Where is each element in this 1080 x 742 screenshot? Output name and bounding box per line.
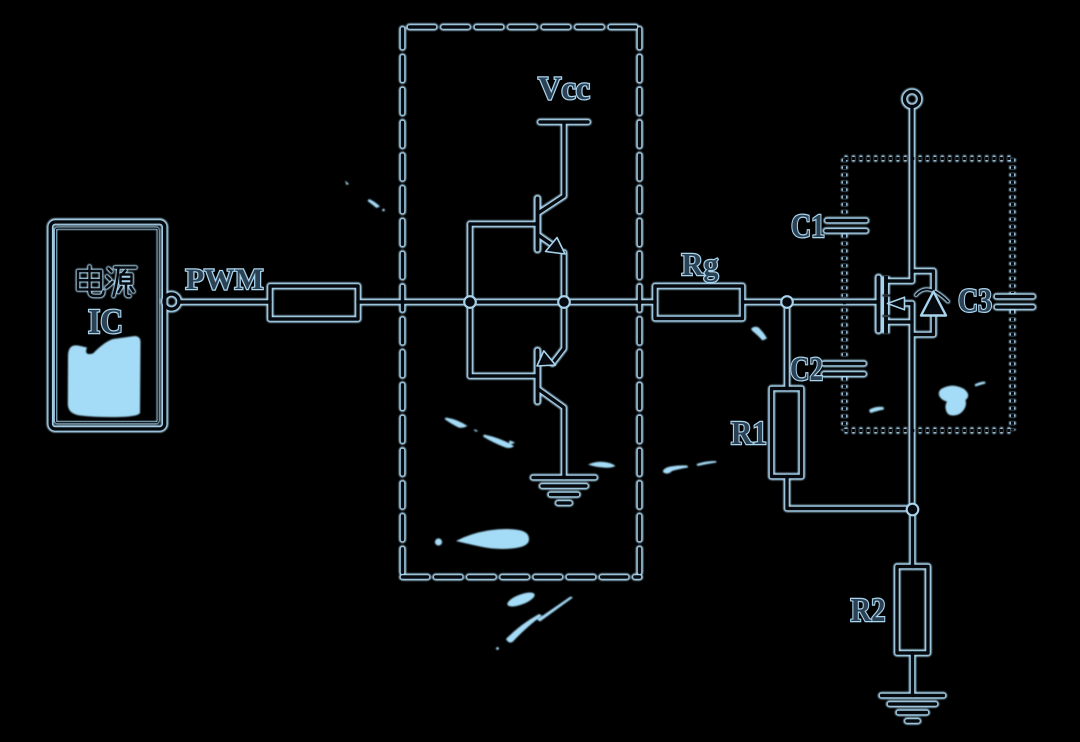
- svg-text:Rg: Rg: [682, 246, 719, 282]
- svg-text:PWM: PWM: [186, 263, 264, 296]
- svg-text:R1: R1: [731, 415, 767, 452]
- svg-text:C2: C2: [790, 351, 823, 388]
- svg-text:C1: C1: [791, 208, 825, 245]
- svg-text:IC: IC: [88, 302, 123, 341]
- svg-text:Vcc: Vcc: [538, 71, 590, 107]
- svg-text:C3: C3: [958, 283, 992, 320]
- svg-text:R2: R2: [851, 592, 886, 629]
